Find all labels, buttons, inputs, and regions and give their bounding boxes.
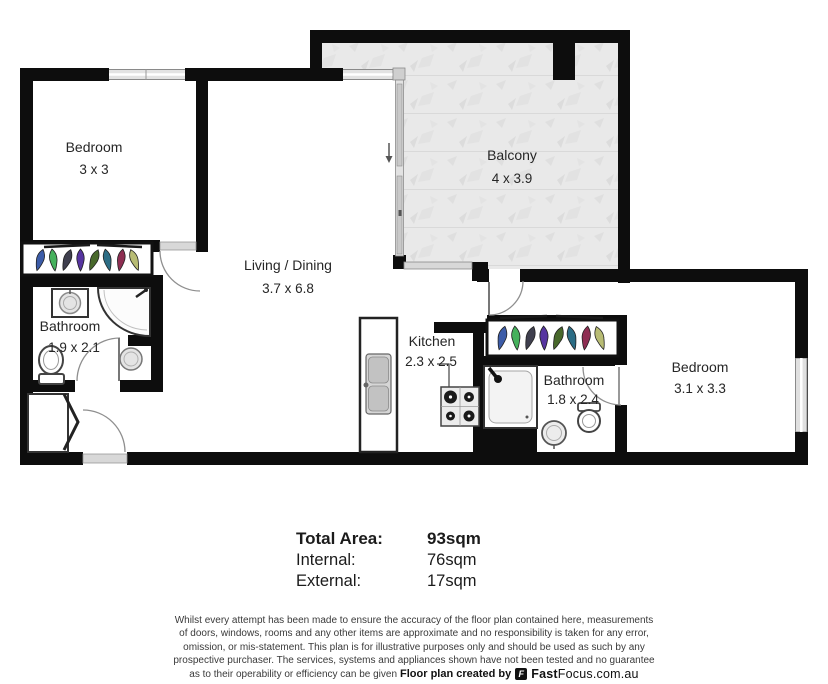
room-label-kitchen: Kitchen <box>409 333 456 349</box>
disclaimer-line-end: as to their operability or efficiency ca… <box>189 668 397 681</box>
external-area-value: 17sqm <box>427 571 477 593</box>
bathroom2-door-opening <box>615 365 627 405</box>
total-area-label: Total Area: <box>296 528 427 550</box>
external-area-row: External: 17sqm <box>296 571 481 593</box>
entry-door-leaf <box>83 454 127 463</box>
sliding-door-panel <box>397 84 402 166</box>
disclaimer-line: Whilst every attempt has been made to en… <box>0 614 828 627</box>
room-dims-bedroom-2: 3.1 x 3.3 <box>674 381 726 396</box>
internal-area-label: Internal: <box>296 550 427 572</box>
wardrobe-1 <box>22 243 152 275</box>
wall-balcony-top <box>310 30 630 43</box>
basin-icon <box>542 421 566 449</box>
fastfocus-logo-icon: F <box>515 668 527 680</box>
shower-icon <box>484 366 537 428</box>
bedroom1-door-leaf <box>160 242 196 250</box>
hall-door-arc <box>489 281 523 315</box>
room-dims-living-dining: 3.7 x 6.8 <box>262 281 314 296</box>
living-top-window <box>340 68 393 81</box>
floor-plan-page: Bedroom 3 x 3 Living / Dining 3.7 x 6.8 … <box>0 0 828 684</box>
room-label-balcony: Balcony <box>487 147 537 163</box>
wall-top-left <box>20 68 108 81</box>
room-dims-balcony: 4 x 3.9 <box>492 171 533 186</box>
wardrobe-2 <box>487 316 618 356</box>
fastfocus-logo-letter: F <box>519 670 525 679</box>
internal-area-row: Internal: 76sqm <box>296 550 481 572</box>
entry-door-arc <box>83 410 125 452</box>
wall-balcony-bottom <box>477 269 808 282</box>
wall-kitchen-top-stub <box>434 322 487 333</box>
toilet-icon <box>578 403 600 432</box>
wall-slider-south-post <box>472 262 488 281</box>
area-summary: Total Area: 93sqm Internal: 76sqm Extern… <box>296 528 481 593</box>
internal-area-value: 76sqm <box>427 550 477 572</box>
floor-plan-drawing: Bedroom 3 x 3 Living / Dining 3.7 x 6.8 … <box>0 0 828 500</box>
room-dims-kitchen: 2.3 x 2.5 <box>405 354 457 369</box>
brand-bold: Fast <box>531 667 558 681</box>
wall-below-shower2 <box>477 428 537 454</box>
kitchen-sink-icon <box>364 354 392 414</box>
room-dims-bathroom-1: 1.9 x 2.1 <box>48 340 100 355</box>
room-dims-bedroom-1: 3 x 3 <box>79 162 108 177</box>
room-label-bathroom-1: Bathroom <box>40 318 101 334</box>
sliding-door-sill <box>404 262 472 269</box>
total-area-value: 93sqm <box>427 528 481 550</box>
wall-bathroom1-right <box>151 275 163 392</box>
sliding-door-handle <box>399 210 402 216</box>
wall-balcony-top-stub <box>553 30 575 80</box>
bedroom1-door-arc <box>160 251 200 291</box>
room-label-bedroom-2: Bedroom <box>672 359 729 375</box>
wall-balcony-right <box>618 30 630 283</box>
room-label-bedroom-1: Bedroom <box>66 139 123 155</box>
credit-text: Floor plan created by <box>400 668 511 681</box>
disclaimer-credit-line: as to their operability or efficiency ca… <box>0 668 828 681</box>
brand-rest: Focus.com.au <box>558 667 639 681</box>
basin-icon <box>120 348 142 370</box>
disclaimer-line: of doors, windows, rooms and any other i… <box>0 627 828 640</box>
shower-icon <box>98 288 150 336</box>
entry-closet <box>28 394 78 452</box>
bathroom1-door-opening <box>75 380 120 392</box>
sink-icon <box>52 289 88 317</box>
disclaimer: Whilst every attempt has been made to en… <box>0 614 828 681</box>
wall-bedroom1-right <box>196 68 208 252</box>
stove-icon <box>441 387 479 426</box>
bedroom1-window <box>105 68 189 81</box>
disclaimer-line: omission, or mis-statement. This plan is… <box>0 641 828 654</box>
room-dims-bathroom-2: 1.8 x 2.4 <box>547 392 599 407</box>
total-area-row: Total Area: 93sqm <box>296 528 481 550</box>
wall-bottom <box>20 452 808 465</box>
fastfocus-brand: FastFocus.com.au <box>531 668 638 681</box>
disclaimer-line: prospective purchaser. The services, sys… <box>0 654 828 667</box>
wall-balcony-left-stub <box>310 30 322 80</box>
sliding-door-corner <box>393 68 405 80</box>
room-label-bathroom-2: Bathroom <box>544 372 605 388</box>
external-area-label: External: <box>296 571 427 593</box>
bedroom2-window <box>795 354 808 436</box>
entrance-arrow-icon <box>386 143 393 163</box>
room-label-living-dining: Living / Dining <box>244 257 332 273</box>
wall-bathroom1-top <box>20 275 163 287</box>
hall-door-opening <box>489 269 520 282</box>
